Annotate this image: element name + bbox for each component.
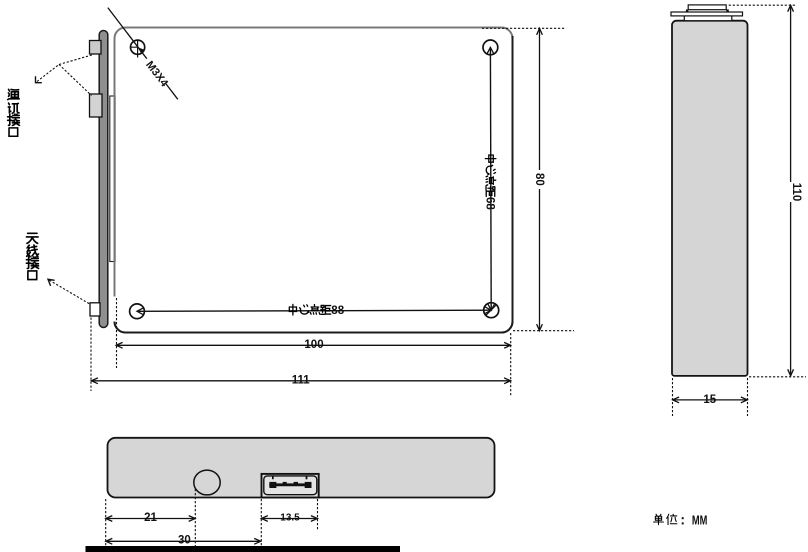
- svg-text:30: 30: [178, 535, 191, 547]
- svg-text:88: 88: [331, 305, 344, 317]
- svg-text:15: 15: [703, 394, 716, 406]
- svg-text:21: 21: [144, 512, 157, 524]
- svg-text:MM: MM: [692, 514, 708, 528]
- svg-text:111: 111: [292, 374, 311, 386]
- svg-text:100: 100: [304, 339, 323, 351]
- svg-text:110: 110: [790, 183, 802, 202]
- svg-text:68: 68: [483, 197, 495, 210]
- svg-text:80: 80: [533, 173, 545, 186]
- svg-text:13.5: 13.5: [280, 513, 300, 524]
